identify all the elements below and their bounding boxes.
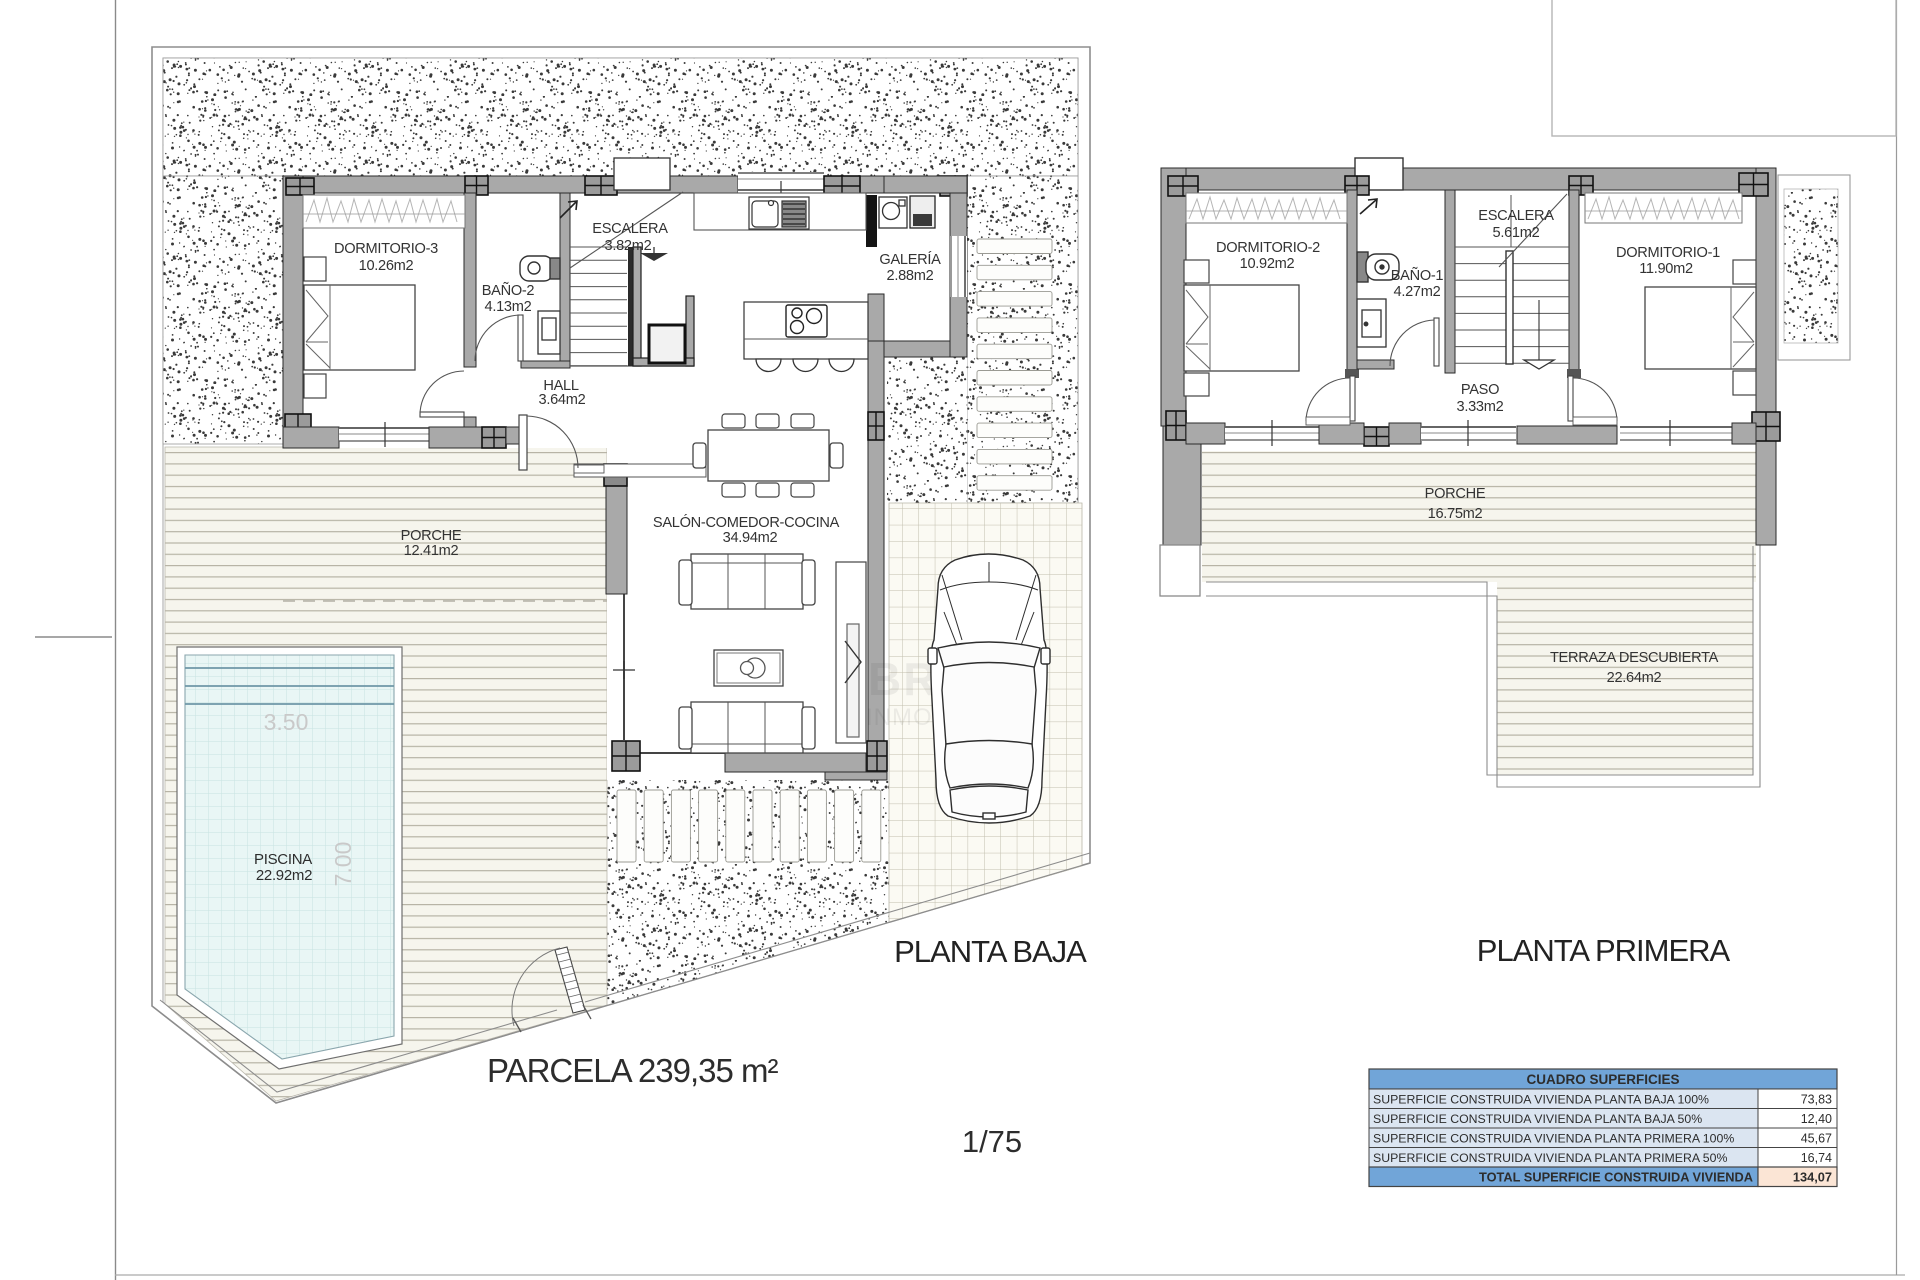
svg-text:34.94m2: 34.94m2 (723, 530, 778, 546)
svg-text:PLANTA BAJA: PLANTA BAJA (894, 934, 1087, 969)
svg-text:5.61m2: 5.61m2 (1493, 225, 1540, 241)
svg-text:10.26m2: 10.26m2 (359, 258, 414, 274)
svg-text:22.64m2: 22.64m2 (1607, 670, 1662, 686)
svg-text:73,83: 73,83 (1801, 1093, 1832, 1107)
svg-text:TERRAZA DESCUBIERTA: TERRAZA DESCUBIERTA (1550, 650, 1719, 666)
svg-text:2.88m2: 2.88m2 (887, 268, 934, 284)
svg-text:DORMITORIO-1: DORMITORIO-1 (1616, 245, 1720, 261)
svg-text:ESCALERA: ESCALERA (1478, 208, 1554, 224)
svg-text:ESCALERA: ESCALERA (592, 221, 668, 237)
svg-text:CUADRO SUPERFICIES: CUADRO SUPERFICIES (1526, 1072, 1679, 1087)
svg-text:12.41m2: 12.41m2 (404, 543, 459, 559)
svg-text:SUPERFICIE CONSTRUIDA VIVIENDA: SUPERFICIE CONSTRUIDA VIVIENDA PLANTA PR… (1373, 1151, 1727, 1165)
svg-text:3.82m2: 3.82m2 (605, 238, 652, 254)
svg-text:12,40: 12,40 (1801, 1112, 1832, 1126)
svg-text:TOTAL SUPERFICIE CONSTRUIDA VI: TOTAL SUPERFICIE CONSTRUIDA VIVIENDA (1479, 1170, 1753, 1185)
svg-text:11.90m2: 11.90m2 (1639, 261, 1693, 277)
svg-text:16.75m2: 16.75m2 (1428, 506, 1483, 522)
svg-text:1/75: 1/75 (962, 1124, 1022, 1159)
svg-text:3.64m2: 3.64m2 (539, 392, 586, 408)
svg-text:DORMITORIO-2: DORMITORIO-2 (1216, 240, 1320, 256)
svg-text:PLANTA PRIMERA: PLANTA PRIMERA (1477, 933, 1731, 968)
svg-text:SALÓN-COMEDOR-COCINA: SALÓN-COMEDOR-COCINA (653, 514, 840, 531)
svg-text:10.92m2: 10.92m2 (1240, 256, 1295, 272)
svg-text:SUPERFICIE CONSTRUIDA VIVIENDA: SUPERFICIE CONSTRUIDA VIVIENDA PLANTA PR… (1373, 1132, 1734, 1146)
svg-text:16,74: 16,74 (1801, 1151, 1832, 1165)
svg-text:PORCHE: PORCHE (401, 528, 462, 544)
svg-text:45,67: 45,67 (1801, 1132, 1832, 1146)
svg-text:GALERÍA: GALERÍA (879, 251, 941, 268)
svg-text:PISCINA: PISCINA (254, 851, 312, 868)
svg-text:DORMITORIO-3: DORMITORIO-3 (334, 241, 438, 257)
svg-text:134,07: 134,07 (1793, 1170, 1832, 1185)
svg-text:4.13m2: 4.13m2 (485, 299, 532, 315)
svg-text:22.92m2: 22.92m2 (256, 867, 312, 884)
svg-text:4.27m2: 4.27m2 (1394, 284, 1441, 300)
svg-text:PORCHE: PORCHE (1425, 486, 1486, 502)
svg-text:BAÑO-1: BAÑO-1 (1391, 267, 1444, 284)
svg-text:BAÑO-2: BAÑO-2 (482, 282, 535, 299)
svg-text:PASO: PASO (1461, 382, 1499, 398)
svg-text:3.50: 3.50 (264, 709, 309, 735)
svg-text:SUPERFICIE CONSTRUIDA VIVIENDA: SUPERFICIE CONSTRUIDA VIVIENDA PLANTA BA… (1373, 1112, 1702, 1126)
svg-text:PARCELA 239,35 m²: PARCELA 239,35 m² (487, 1052, 779, 1089)
svg-text:SUPERFICIE CONSTRUIDA VIVIENDA: SUPERFICIE CONSTRUIDA VIVIENDA PLANTA BA… (1373, 1093, 1709, 1107)
svg-text:3.33m2: 3.33m2 (1457, 399, 1504, 415)
svg-text:7.00: 7.00 (330, 842, 356, 887)
